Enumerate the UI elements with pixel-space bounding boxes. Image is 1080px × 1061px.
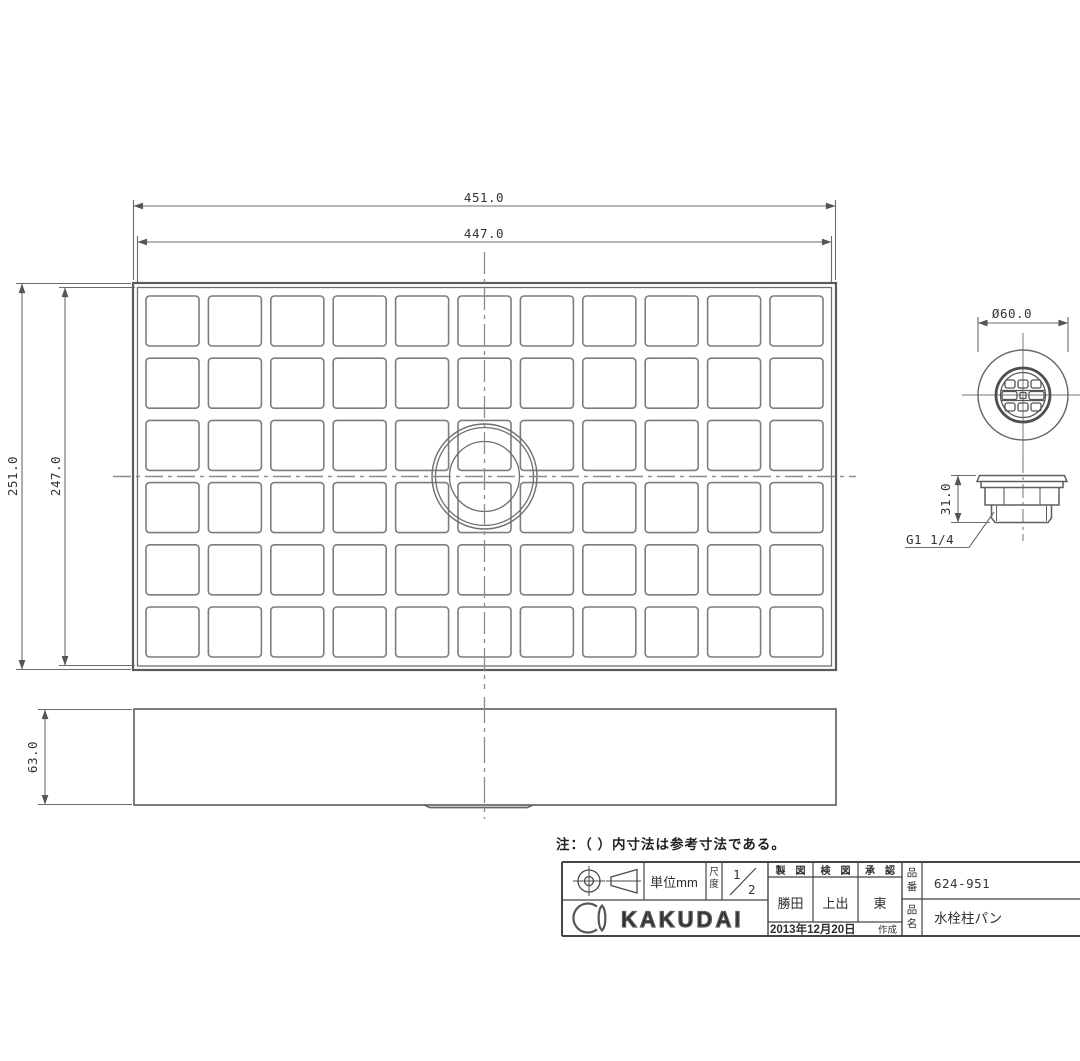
part-no-label-bottom: 番 <box>907 881 918 893</box>
grid-square <box>520 483 573 533</box>
grid-square <box>520 296 573 346</box>
creation-date: 2013年12月20日 <box>770 922 856 936</box>
grid-square <box>583 607 636 657</box>
drain-side-view: 31.0 G1 1/4 <box>905 459 1067 548</box>
grid-square <box>146 545 199 595</box>
grate-slot <box>1005 380 1015 388</box>
drain-flange-band <box>981 482 1063 488</box>
drain-hex-body <box>985 488 1059 506</box>
dim-drain-diameter: Ø60.0 <box>992 306 1032 321</box>
grid-square <box>333 483 386 533</box>
grid-square <box>520 607 573 657</box>
grid-square <box>146 296 199 346</box>
grid-square <box>333 358 386 408</box>
part-name-label-top: 品 <box>907 904 918 916</box>
dim-plan-width-outer: 451.0 <box>464 190 504 205</box>
dim-plan-height-outer: 251.0 <box>5 456 20 496</box>
part-name: 水栓柱パン <box>934 911 1002 926</box>
grid-square <box>583 358 636 408</box>
drain-height-dimension <box>951 476 990 523</box>
grid-square <box>333 545 386 595</box>
grid-square <box>770 296 823 346</box>
grid-square <box>146 358 199 408</box>
grid-square <box>770 545 823 595</box>
grid-square <box>645 296 698 346</box>
grid-square <box>708 483 761 533</box>
grid-square <box>645 545 698 595</box>
grate-slot <box>1031 380 1041 388</box>
front-dimensions <box>38 710 132 805</box>
grid-square <box>333 607 386 657</box>
front-view <box>134 697 836 819</box>
grid-square <box>333 296 386 346</box>
grid-square <box>396 483 449 533</box>
grid-square <box>146 483 199 533</box>
scale-numerator: 1 <box>733 867 741 882</box>
part-no-label-top: 品 <box>907 867 918 879</box>
grid-square <box>645 420 698 470</box>
title-block: 単位mm 尺 度 1 2 KAKUDAI 製 図 検 図 承 認 勝田 上出 東… <box>562 862 1080 936</box>
grid-square <box>146 420 199 470</box>
creation-date-suffix: 作成 <box>878 924 898 936</box>
drain-thread-body <box>992 505 1052 523</box>
grid-square <box>396 545 449 595</box>
grid-square <box>396 607 449 657</box>
grid-square <box>645 358 698 408</box>
plan-view <box>113 252 856 689</box>
grid-square <box>271 607 324 657</box>
grid-square <box>271 545 324 595</box>
part-number: 624-951 <box>934 876 990 891</box>
grid-square <box>396 420 449 470</box>
grid-square <box>645 483 698 533</box>
grid-square <box>208 358 261 408</box>
third-angle-projection-icon <box>573 866 641 896</box>
grid-square <box>396 296 449 346</box>
grid-square <box>271 420 324 470</box>
grid-square <box>583 545 636 595</box>
grid-square <box>770 483 823 533</box>
technical-drawing: 451.0 447.0 251.0 247.0 63.0 <box>0 0 1080 1061</box>
grid-square <box>208 420 261 470</box>
dim-plan-width-inner: 447.0 <box>464 226 504 241</box>
grid-square <box>708 358 761 408</box>
grid-square <box>770 358 823 408</box>
grid-square <box>271 483 324 533</box>
grid-square <box>396 358 449 408</box>
grid-square <box>520 420 573 470</box>
drain-top-view: Ø60.0 <box>962 306 1080 459</box>
header-checked: 検 図 <box>821 864 851 877</box>
grid-square <box>708 420 761 470</box>
reference-note: 注：（ ）内寸法は参考寸法である。 <box>556 836 786 852</box>
grid-square <box>208 483 261 533</box>
dim-drain-height: 31.0 <box>938 483 953 515</box>
grid-square <box>271 296 324 346</box>
grid-square <box>583 420 636 470</box>
unit-label: 単位mm <box>650 875 698 890</box>
part-name-label-bottom: 名 <box>907 917 918 930</box>
grid-square <box>645 607 698 657</box>
header-drafted: 製 図 <box>775 864 806 877</box>
scale-label-top: 尺 <box>709 867 719 878</box>
logo-leaf <box>599 906 606 931</box>
dim-plan-height-inner: 247.0 <box>48 456 63 496</box>
thread-size-label: G1 1/4 <box>906 532 954 547</box>
grid-square <box>333 420 386 470</box>
grid-square <box>708 296 761 346</box>
header-approved: 承 認 <box>865 864 895 877</box>
grid-square <box>708 545 761 595</box>
name-approved: 東 <box>873 896 886 911</box>
grid-square <box>583 483 636 533</box>
name-checked: 上出 <box>822 896 848 911</box>
grid-square <box>520 545 573 595</box>
scale-label-bottom: 度 <box>709 878 719 890</box>
grid-square <box>583 296 636 346</box>
grid-square <box>770 607 823 657</box>
name-drafted: 勝田 <box>777 896 803 911</box>
grid-square <box>520 358 573 408</box>
drawing-canvas: 451.0 447.0 251.0 247.0 63.0 <box>0 0 1080 1061</box>
grid-square <box>208 607 261 657</box>
grid-square <box>208 296 261 346</box>
dim-front-height: 63.0 <box>25 741 40 773</box>
grid-square <box>146 607 199 657</box>
grid-square <box>208 545 261 595</box>
grid-square <box>271 358 324 408</box>
grid-square <box>770 420 823 470</box>
brand-wordmark: KAKUDAI <box>621 907 743 932</box>
scale-denominator: 2 <box>748 882 756 897</box>
drain-flange-top <box>977 476 1067 482</box>
kakudai-logo-icon <box>573 903 605 932</box>
logo-crescent <box>573 903 596 932</box>
grid-square <box>708 607 761 657</box>
